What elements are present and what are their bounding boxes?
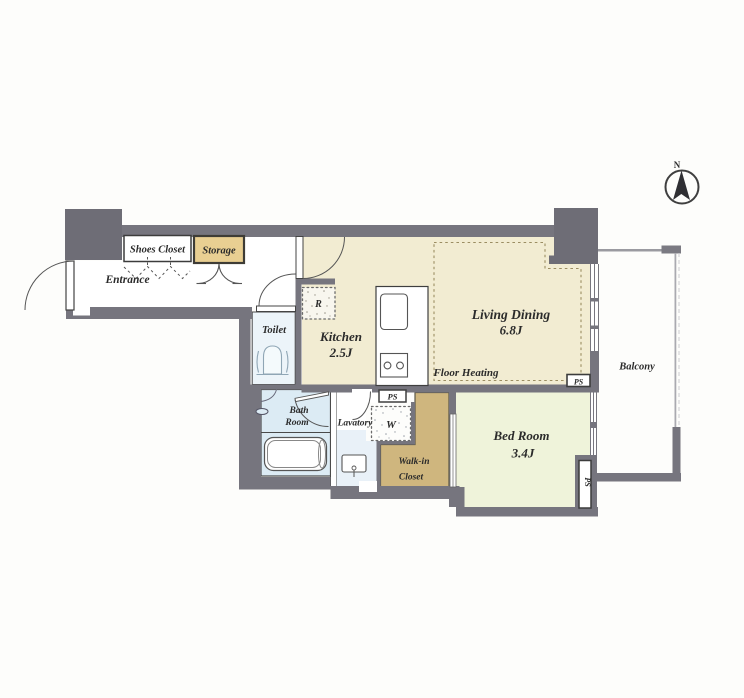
svg-text:6.8J: 6.8J — [500, 323, 523, 338]
svg-text:Storage: Storage — [202, 246, 236, 257]
svg-text:N: N — [674, 160, 681, 170]
svg-text:3.4J: 3.4J — [511, 446, 535, 461]
svg-text:R: R — [314, 299, 322, 310]
svg-text:W: W — [386, 419, 397, 431]
svg-text:Toilet: Toilet — [262, 325, 287, 336]
svg-text:Lavatory: Lavatory — [337, 419, 374, 429]
svg-text:Floor Heating: Floor Heating — [432, 367, 499, 379]
svg-text:PS: PS — [583, 477, 592, 487]
svg-text:Bed Room: Bed Room — [493, 428, 550, 443]
svg-text:PS: PS — [388, 392, 398, 402]
svg-text:Living Dining: Living Dining — [471, 307, 551, 322]
svg-text:Closet: Closet — [399, 473, 424, 483]
svg-text:Shoes Closet: Shoes Closet — [130, 245, 186, 256]
svg-text:PS: PS — [574, 378, 584, 387]
svg-text:Room: Room — [284, 418, 308, 428]
svg-text:Balcony: Balcony — [618, 362, 655, 373]
svg-text:2.5J: 2.5J — [329, 345, 353, 360]
svg-text:Entrance: Entrance — [104, 274, 149, 286]
svg-text:Kitchen: Kitchen — [319, 329, 362, 344]
svg-text:Bath: Bath — [288, 406, 308, 416]
svg-text:Walk-in: Walk-in — [399, 457, 430, 467]
